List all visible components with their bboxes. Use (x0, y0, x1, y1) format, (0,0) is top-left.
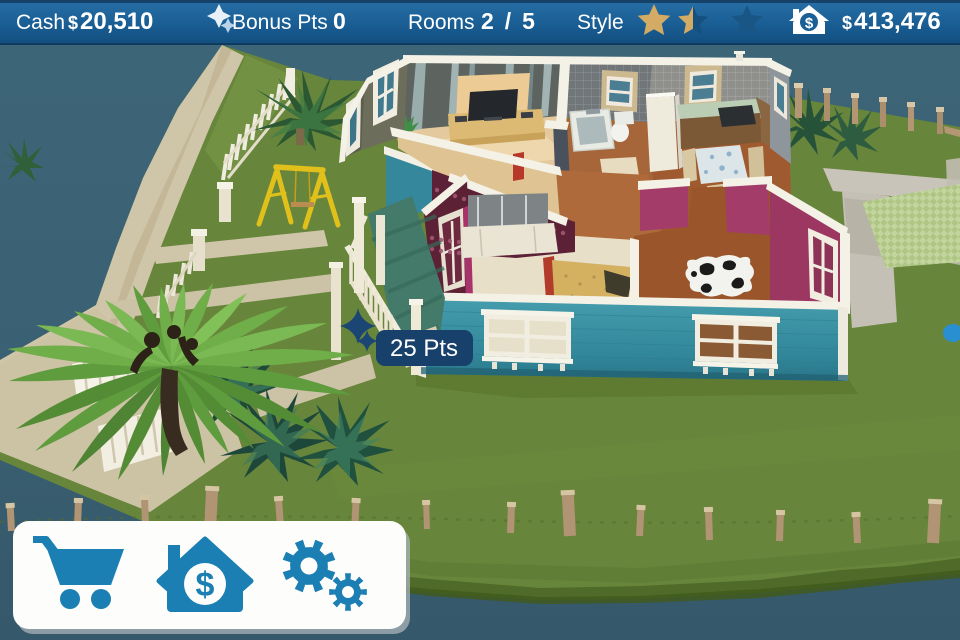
svg-text:413,476: 413,476 (854, 8, 941, 35)
svg-text:Style: Style (577, 11, 624, 34)
svg-text:$: $ (805, 15, 814, 32)
svg-text:20,510: 20,510 (80, 8, 153, 35)
svg-text:Cash: Cash (16, 11, 65, 34)
svg-text:25 Pts: 25 Pts (390, 335, 458, 362)
svg-text:$: $ (68, 13, 78, 33)
svg-text:$: $ (196, 566, 215, 604)
svg-text:Rooms: Rooms (408, 11, 475, 34)
svg-text:Bonus Pts: Bonus Pts (232, 11, 328, 34)
svg-text:0: 0 (333, 8, 346, 34)
svg-text:$: $ (842, 13, 852, 33)
svg-text:2 / 5: 2 / 5 (481, 8, 535, 34)
